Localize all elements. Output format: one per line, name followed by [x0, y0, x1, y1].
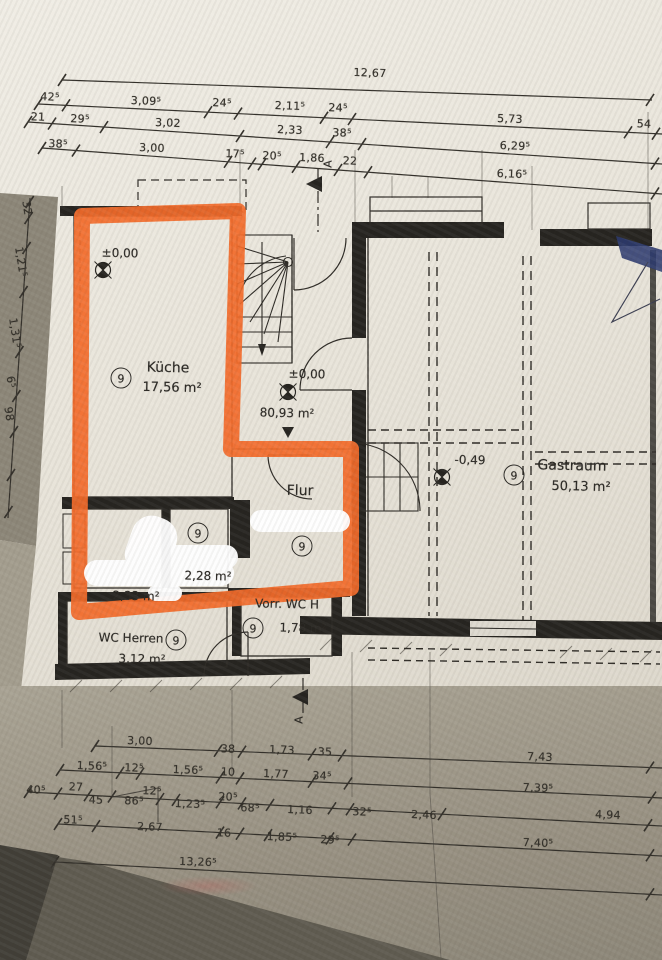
staircase-main — [237, 235, 293, 363]
floorplan-linework — [0, 0, 662, 960]
level-marker-gastraum — [425, 460, 459, 494]
level-marker-kueche — [86, 253, 120, 287]
level-marker-hall — [271, 375, 305, 409]
plan-corner-outline — [112, 788, 158, 822]
dimension-chains — [4, 74, 662, 900]
area-pointer-triangle — [282, 427, 294, 438]
floorplan-photo: 12,6742⁵3,09⁵24⁵2,11⁵24⁵5,73542129⁵3,022… — [0, 0, 662, 960]
dashed-lines — [368, 252, 660, 664]
